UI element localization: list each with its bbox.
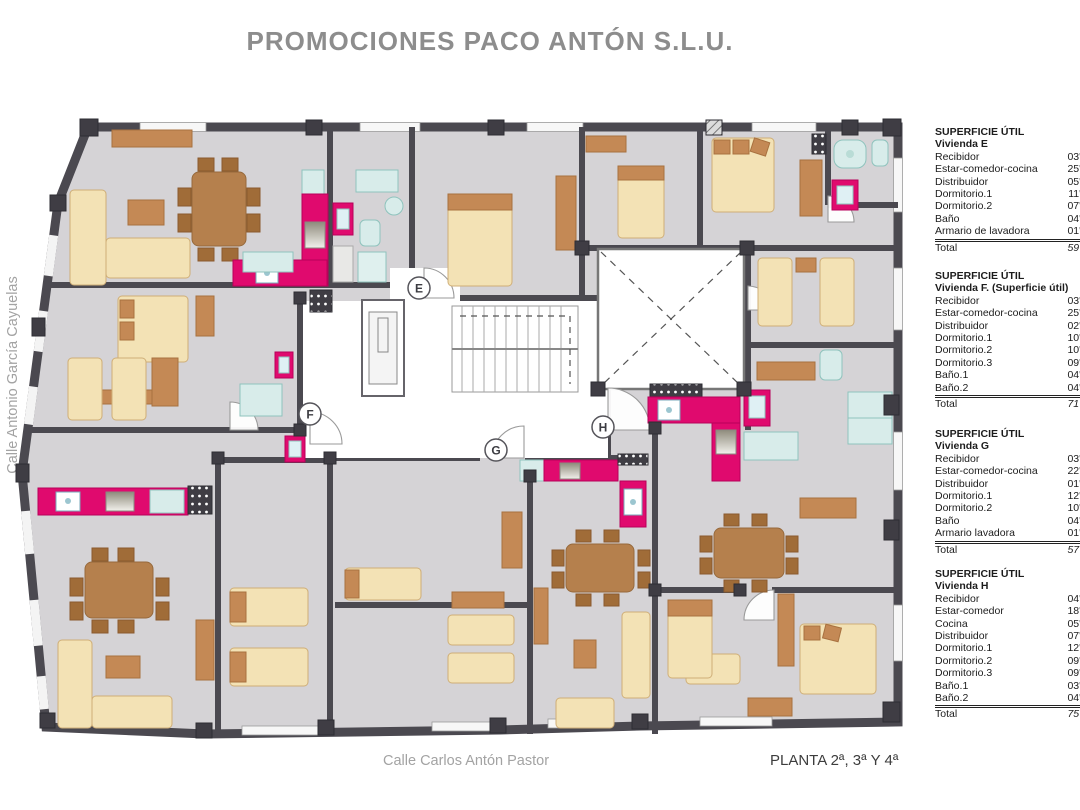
courtyard [598, 249, 744, 389]
table-row: Distribuidor01'9 [935, 478, 1080, 490]
table-total-row: Total71'3 [935, 397, 1080, 410]
area-table-vivienda-e: SUPERFICIE ÚTIL Vivienda E Recibidor03'9… [935, 126, 1080, 254]
svg-text:E: E [415, 282, 423, 296]
unit-marker-g: G [485, 439, 507, 461]
table-header: SUPERFICIE ÚTIL [935, 568, 1080, 580]
table-row: Estar-comedor-cocina25'1 [935, 307, 1080, 319]
table-row: Estar-comedor-cocina22'9 [935, 465, 1080, 477]
table-row: Baño04'1 [935, 213, 1080, 225]
table-total-row: Total57'1 [935, 543, 1080, 556]
table-total-row: Total59'7 [935, 241, 1080, 254]
table-header: SUPERFICIE ÚTIL [935, 126, 1080, 138]
table-row: Dormitorio.309'5 [935, 357, 1080, 369]
unit-marker-e: E [408, 277, 430, 299]
table-row: Dormitorio.309'9 [935, 667, 1080, 679]
table-row: Dormitorio.210'4 [935, 344, 1080, 356]
table-total-row: Total75'3 [935, 707, 1080, 720]
svg-text:G: G [491, 444, 500, 458]
table-header: SUPERFICIE ÚTIL [935, 428, 1080, 440]
table-row: Baño04'4 [935, 515, 1080, 527]
table-row: Armario de lavadora01'0 [935, 225, 1080, 237]
table-row: Armario lavadora01'6 [935, 527, 1080, 539]
table-row: Dormitorio.110'9 [935, 332, 1080, 344]
table-row: Dormitorio.111'4 [935, 188, 1080, 200]
table-row: Baño.104'1 [935, 369, 1080, 381]
table-row: Dormitorio.209'0 [935, 655, 1080, 667]
table-row: Recibidor03'6 [935, 295, 1080, 307]
table-row: Baño.204'4 [935, 692, 1080, 704]
table-unit-name: Vivienda H [935, 580, 1080, 592]
table-row: Dormitorio.112'6 [935, 490, 1080, 502]
table-row: Cocina05'6 [935, 618, 1080, 630]
staircase [452, 306, 578, 392]
table-header: SUPERFICIE ÚTIL [935, 270, 1080, 282]
table-row: Recibidor04'3 [935, 593, 1080, 605]
table-unit-name: Vivienda E [935, 138, 1080, 150]
table-row: Dormitorio.112'2 [935, 642, 1080, 654]
table-unit-name: Vivienda G [935, 440, 1080, 452]
kitchen-f [38, 486, 212, 515]
table-row: Dormitorio.210'2 [935, 502, 1080, 514]
table-row: Baño.103'6 [935, 680, 1080, 692]
table-row: Distribuidor02'6 [935, 320, 1080, 332]
page: PROMOCIONES PACO ANTÓN S.L.U. Calle Anto… [0, 0, 1080, 810]
page-title: PROMOCIONES PACO ANTÓN S.L.U. [200, 26, 780, 57]
table-unit-name: Vivienda F. (Superficie útil) [935, 282, 1080, 294]
elevator [362, 300, 404, 396]
table-row: Estar-comedor-cocina25'8 [935, 163, 1080, 175]
unit-marker-f: F [299, 403, 321, 425]
area-table-vivienda-g: SUPERFICIE ÚTIL Vivienda G Recibidor03'2… [935, 428, 1080, 556]
table-row: Recibidor03'9 [935, 151, 1080, 163]
unit-marker-h: H [592, 416, 614, 438]
table-row: Distribuidor05'8 [935, 176, 1080, 188]
table-row: Dormitorio.207'4 [935, 200, 1080, 212]
area-table-vivienda-f: SUPERFICIE ÚTIL Vivienda F. (Superficie … [935, 270, 1080, 410]
svg-text:H: H [599, 421, 608, 435]
table-row: Distribuidor07'1 [935, 630, 1080, 642]
table-row: Baño.204'4 [935, 382, 1080, 394]
table-row: Recibidor03'2 [935, 453, 1080, 465]
floor-plan: E F G H [0, 100, 910, 760]
area-table-vivienda-h: SUPERFICIE ÚTIL Vivienda H Recibidor04'3… [935, 568, 1080, 721]
table-row: Estar-comedor18'8 [935, 605, 1080, 617]
svg-text:F: F [306, 408, 313, 422]
